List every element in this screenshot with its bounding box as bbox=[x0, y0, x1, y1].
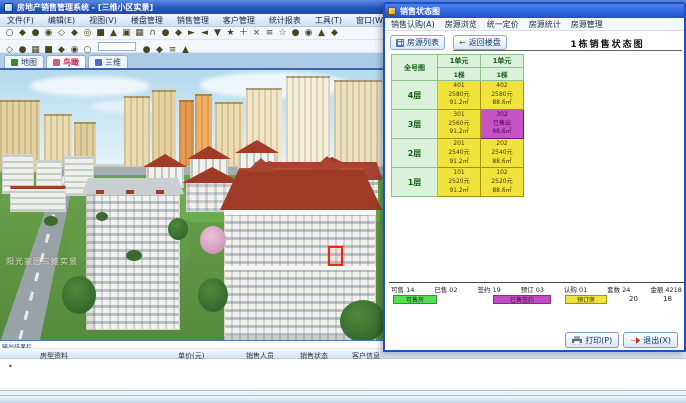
count-total: 套数 24 bbox=[607, 284, 630, 294]
heading-rule bbox=[453, 50, 682, 51]
dlg-menu-manage[interactable]: 房源管理 bbox=[571, 19, 603, 30]
bg-tower bbox=[124, 96, 150, 174]
tool-icon[interactable]: × bbox=[251, 28, 262, 39]
blossom-tree bbox=[200, 226, 226, 254]
exit-button[interactable]: 退出(X) bbox=[623, 332, 678, 348]
dlg-menu-stats[interactable]: 房源统计 bbox=[529, 19, 561, 30]
room-list-label: 房源列表 bbox=[407, 37, 439, 48]
menu-tools[interactable]: 工具(T) bbox=[308, 15, 349, 26]
dialog-menubar: 销售认购(A) 房源浏览 统一定价 房源统计 房源管理 bbox=[385, 18, 684, 31]
count-amount: 金额 4218 bbox=[650, 284, 682, 294]
tab-map[interactable]: 地图 bbox=[4, 55, 44, 68]
viewport-watermark: 阳光家园三维实景 bbox=[6, 256, 78, 267]
tab-3d[interactable]: 三维 bbox=[88, 55, 128, 68]
tool-icon[interactable]: ■ bbox=[95, 28, 106, 39]
count-signed: 签约 19 bbox=[477, 284, 500, 294]
main-window-title: 房地产销售管理系统 - [三维小区实景] bbox=[17, 2, 153, 13]
row-marker[interactable]: • bbox=[8, 362, 13, 371]
menu-view[interactable]: 视图(V) bbox=[82, 15, 124, 26]
tool-icon[interactable]: ◄ bbox=[199, 28, 210, 39]
tab-birdview[interactable]: 鸟瞰 bbox=[46, 55, 86, 68]
menu-file[interactable]: 文件(F) bbox=[0, 15, 41, 26]
bg-tower bbox=[286, 76, 330, 174]
bg-tower bbox=[334, 80, 382, 174]
menu-customer[interactable]: 客户管理 bbox=[216, 15, 262, 26]
grid-icon bbox=[396, 39, 404, 47]
tool-icon[interactable]: ＋ bbox=[238, 28, 249, 39]
status-legend: 可售 14 已售 02 签约 19 预订 03 认购 01 套数 24 金额 4… bbox=[389, 282, 684, 306]
room-list-button[interactable]: 房源列表 bbox=[390, 35, 445, 50]
exit-icon bbox=[630, 336, 640, 345]
unit-cell[interactable]: 4012580元91.2㎡ bbox=[438, 81, 481, 110]
dlg-menu-pricing[interactable]: 统一定价 bbox=[487, 19, 519, 30]
roof-cap bbox=[156, 190, 164, 194]
tool-icon[interactable]: ◉ bbox=[303, 28, 314, 39]
legend-extra: 20 bbox=[629, 295, 638, 303]
tool-icon[interactable]: ▲ bbox=[108, 28, 119, 39]
unit-header[interactable]: 1单元 bbox=[438, 55, 481, 68]
back-to-estate-button[interactable]: ← 返回楼盘 bbox=[453, 35, 507, 50]
apartment-slab bbox=[10, 186, 66, 212]
floor-header: 3层 bbox=[392, 110, 438, 139]
unit-cell[interactable]: 1022520元88.6㎡ bbox=[481, 168, 524, 197]
building-roof-red bbox=[220, 168, 382, 210]
dock-body[interactable]: • bbox=[0, 359, 686, 391]
unit-cell[interactable]: 3012560元91.2㎡ bbox=[438, 110, 481, 139]
tool-icon[interactable]: ★ bbox=[225, 28, 236, 39]
dlg-menu-browse[interactable]: 房源浏览 bbox=[445, 19, 477, 30]
bush bbox=[96, 212, 108, 221]
exit-label: 退出(X) bbox=[643, 335, 671, 346]
application-window: 房地产销售管理系统 - [三维小区实景] 文件(F) 编辑(E) 视图(V) 楼… bbox=[0, 0, 686, 403]
tool-icon[interactable]: ▲ bbox=[316, 28, 327, 39]
count-available: 可售 14 bbox=[391, 284, 414, 294]
selected-unit-box[interactable] bbox=[328, 246, 343, 266]
tab-label: 三维 bbox=[105, 57, 121, 68]
dlg-menu-sale[interactable]: 销售认购(A) bbox=[391, 19, 435, 30]
unit-cell[interactable]: 2012540元91.2㎡ bbox=[438, 139, 481, 168]
dialog-heading: 1栋销售状态图 bbox=[535, 37, 680, 50]
tool-icon[interactable]: ● bbox=[290, 28, 301, 39]
legend-extra: 18 bbox=[663, 295, 672, 303]
bush bbox=[126, 250, 142, 261]
unit-cell[interactable]: 2022540元88.6㎡ bbox=[481, 139, 524, 168]
back-arrow-icon: ← bbox=[459, 39, 466, 47]
unit-cell[interactable]: 4022580元88.6㎡ bbox=[481, 81, 524, 110]
printer-icon bbox=[572, 336, 582, 345]
app-icon bbox=[4, 3, 13, 12]
print-label: 打印(P) bbox=[585, 335, 612, 346]
roof-cap bbox=[126, 190, 134, 194]
table-corner: 全号图 bbox=[392, 55, 438, 81]
unit-cell-sold[interactable]: 302已售出88.6㎡ bbox=[481, 110, 524, 139]
roof-cap bbox=[96, 190, 104, 194]
tool-icon[interactable]: ☆ bbox=[277, 28, 288, 39]
tree bbox=[62, 276, 96, 314]
dialog-buttons: 打印(P) 退出(X) bbox=[385, 332, 681, 348]
sales-table: 全号图 1单元 1单元 1梯 1梯 4层 4012580元91.2㎡ 40225… bbox=[391, 54, 524, 197]
dialog-titlebar: 销售状态图 bbox=[385, 4, 684, 18]
sales-status-dialog: 销售状态图 销售认购(A) 房源浏览 统一定价 房源统计 房源管理 房源列表 ←… bbox=[383, 2, 686, 352]
tool-icon[interactable]: ≡ bbox=[264, 28, 275, 39]
cube-3d-icon bbox=[95, 59, 102, 66]
legend-swatch-available: 可售房 bbox=[393, 295, 437, 304]
dialog-icon bbox=[388, 7, 396, 15]
tab-label: 地图 bbox=[21, 57, 37, 68]
count-sold: 已售 02 bbox=[434, 284, 457, 294]
print-button[interactable]: 打印(P) bbox=[565, 332, 619, 348]
stair-header[interactable]: 1梯 bbox=[481, 68, 524, 81]
cloud bbox=[30, 76, 150, 96]
menu-estate[interactable]: 楼盘管理 bbox=[124, 15, 170, 26]
legend-swatch-reserved: 预订房 bbox=[565, 295, 607, 304]
floor-header: 4层 bbox=[392, 81, 438, 110]
floor-header: 2层 bbox=[392, 139, 438, 168]
tool-icon[interactable]: ▣ bbox=[121, 28, 132, 39]
taskbar bbox=[0, 395, 686, 403]
stair-header[interactable]: 1梯 bbox=[438, 68, 481, 81]
tree bbox=[198, 278, 228, 312]
bush bbox=[44, 216, 58, 226]
unit-cell[interactable]: 1012520元91.2㎡ bbox=[438, 168, 481, 197]
tool-icon[interactable]: ◆ bbox=[329, 28, 340, 39]
tab-label: 鸟瞰 bbox=[63, 57, 79, 68]
menu-edit[interactable]: 编辑(E) bbox=[41, 15, 82, 26]
tree bbox=[168, 218, 188, 240]
tree bbox=[340, 300, 386, 340]
legend-swatch-sold: 已售签约 bbox=[493, 295, 551, 304]
map-icon bbox=[11, 59, 18, 66]
menu-sales[interactable]: 销售管理 bbox=[170, 15, 216, 26]
birdview-icon bbox=[53, 59, 60, 66]
dialog-toolbar: 房源列表 ← 返回楼盘 bbox=[390, 35, 507, 50]
back-label: 返回楼盘 bbox=[469, 37, 501, 48]
count-subscribed: 认购 01 bbox=[564, 284, 587, 294]
dialog-title: 销售状态图 bbox=[400, 6, 440, 17]
unit-header[interactable]: 1单元 bbox=[481, 55, 524, 68]
tool-icon[interactable]: ▼ bbox=[212, 28, 223, 39]
legend-counts: 可售 14 已售 02 签约 19 预订 03 认购 01 套数 24 金额 4… bbox=[389, 283, 684, 294]
trim-band bbox=[224, 210, 376, 215]
floor-header: 1层 bbox=[392, 168, 438, 197]
count-reserved: 预订 03 bbox=[521, 284, 544, 294]
scale-select[interactable] bbox=[98, 42, 136, 51]
menu-report[interactable]: 统计报表 bbox=[262, 15, 308, 26]
trim-band bbox=[224, 266, 376, 270]
